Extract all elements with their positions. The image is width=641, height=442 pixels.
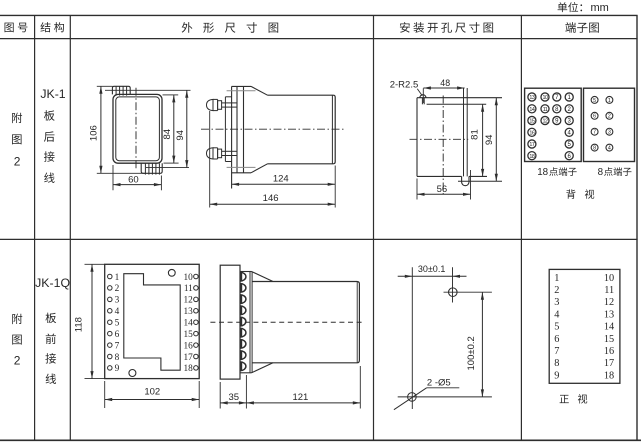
svg-text:146: 146 bbox=[263, 193, 279, 204]
svg-text:16: 16 bbox=[184, 341, 194, 351]
svg-text:2: 2 bbox=[14, 354, 21, 368]
svg-text:15: 15 bbox=[604, 334, 614, 345]
svg-text:5: 5 bbox=[554, 322, 559, 333]
svg-text:60: 60 bbox=[128, 175, 139, 186]
svg-text:1: 1 bbox=[115, 273, 120, 283]
svg-text:4: 4 bbox=[115, 307, 120, 317]
svg-text:8: 8 bbox=[598, 167, 604, 178]
svg-text:7: 7 bbox=[115, 341, 120, 351]
svg-text:16: 16 bbox=[604, 346, 614, 357]
svg-text:mm: mm bbox=[591, 2, 609, 14]
svg-text:6: 6 bbox=[115, 330, 120, 340]
svg-text:100±0.2: 100±0.2 bbox=[466, 336, 477, 370]
svg-text:13: 13 bbox=[604, 309, 614, 320]
svg-text:14: 14 bbox=[529, 107, 534, 113]
svg-text:14: 14 bbox=[184, 319, 194, 329]
svg-text:8: 8 bbox=[593, 146, 596, 152]
svg-text:12: 12 bbox=[604, 297, 614, 308]
svg-text:84: 84 bbox=[162, 129, 173, 140]
svg-text:5: 5 bbox=[115, 319, 120, 329]
svg-text:48: 48 bbox=[440, 78, 450, 88]
svg-text:4: 4 bbox=[554, 309, 559, 320]
svg-text:8: 8 bbox=[115, 353, 120, 363]
svg-text:18: 18 bbox=[537, 167, 548, 178]
svg-text:56: 56 bbox=[437, 184, 448, 195]
svg-text:2 -Ø5: 2 -Ø5 bbox=[427, 378, 451, 389]
svg-text:2: 2 bbox=[608, 114, 611, 120]
svg-text:16: 16 bbox=[529, 130, 534, 136]
svg-text:94: 94 bbox=[175, 130, 186, 141]
svg-text:14: 14 bbox=[604, 322, 614, 333]
svg-text:JK-1: JK-1 bbox=[40, 87, 65, 101]
svg-text:6: 6 bbox=[554, 334, 559, 345]
svg-text:12: 12 bbox=[184, 296, 194, 306]
svg-text:124: 124 bbox=[273, 173, 289, 184]
svg-text:9: 9 bbox=[554, 370, 559, 381]
svg-text:18: 18 bbox=[604, 370, 614, 381]
svg-text:81: 81 bbox=[469, 129, 480, 140]
svg-text:9: 9 bbox=[115, 364, 120, 374]
svg-text:2: 2 bbox=[14, 155, 21, 169]
svg-text:JK-1Q: JK-1Q bbox=[35, 276, 70, 290]
svg-text:102: 102 bbox=[144, 387, 160, 398]
svg-text:11: 11 bbox=[543, 107, 548, 113]
svg-text:2: 2 bbox=[554, 285, 559, 296]
svg-text:7: 7 bbox=[593, 130, 596, 136]
svg-text:8: 8 bbox=[554, 358, 559, 369]
svg-text:121: 121 bbox=[292, 392, 308, 403]
svg-text:106: 106 bbox=[89, 125, 100, 141]
svg-text:18: 18 bbox=[184, 364, 194, 374]
svg-text:3: 3 bbox=[115, 296, 120, 306]
svg-text:94: 94 bbox=[484, 135, 495, 146]
svg-text:118: 118 bbox=[73, 317, 84, 332]
svg-text:13: 13 bbox=[529, 95, 534, 101]
svg-text:11: 11 bbox=[184, 284, 193, 294]
svg-text:3: 3 bbox=[608, 130, 611, 136]
svg-text:2: 2 bbox=[115, 284, 120, 294]
svg-text:1: 1 bbox=[554, 273, 559, 284]
svg-text:17: 17 bbox=[184, 353, 194, 363]
svg-text:35: 35 bbox=[229, 392, 240, 403]
svg-text:18: 18 bbox=[529, 154, 534, 160]
svg-text:13: 13 bbox=[184, 307, 194, 317]
svg-text:17: 17 bbox=[604, 358, 614, 369]
svg-text:30±0.1: 30±0.1 bbox=[418, 264, 445, 274]
svg-text:1: 1 bbox=[608, 98, 611, 104]
svg-text:5: 5 bbox=[593, 98, 596, 104]
svg-text:17: 17 bbox=[529, 142, 534, 148]
svg-text:4: 4 bbox=[608, 146, 611, 152]
svg-text:2-R2.5: 2-R2.5 bbox=[390, 80, 419, 91]
svg-text:11: 11 bbox=[604, 285, 614, 296]
svg-text:10: 10 bbox=[184, 273, 194, 283]
svg-text:15: 15 bbox=[529, 119, 534, 125]
svg-text:10: 10 bbox=[543, 95, 548, 101]
svg-text:7: 7 bbox=[554, 346, 559, 357]
svg-text:3: 3 bbox=[554, 297, 559, 308]
svg-text:10: 10 bbox=[604, 273, 614, 284]
svg-text:6: 6 bbox=[593, 114, 596, 120]
svg-text:15: 15 bbox=[184, 330, 194, 340]
svg-text:12: 12 bbox=[543, 119, 548, 125]
